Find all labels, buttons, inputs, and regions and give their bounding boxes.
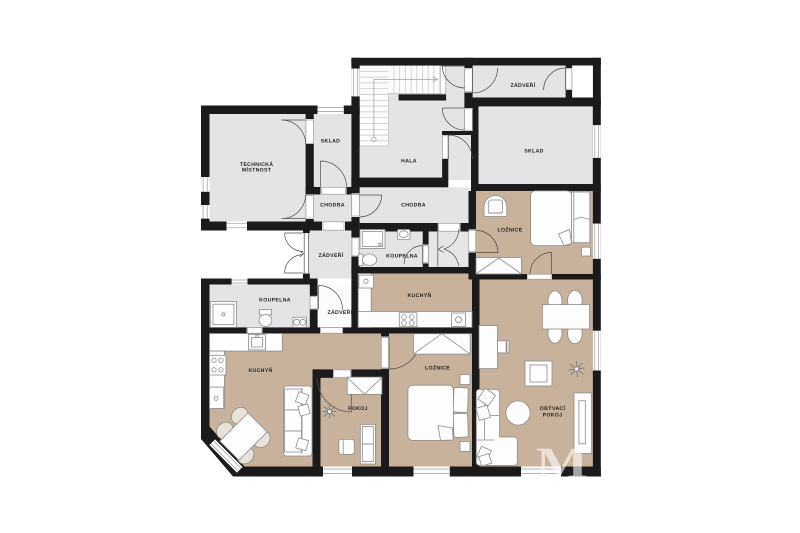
svg-text:POKOJ: POKOJ [348,406,368,412]
svg-text:KOUPELNA: KOUPELNA [259,298,291,304]
svg-text:LOŽNICE: LOŽNICE [425,365,450,372]
svg-text:KOUPELNA: KOUPELNA [386,254,418,260]
svg-text:M: M [536,439,588,488]
svg-text:SKLAD: SKLAD [321,139,340,145]
svg-text:ZÁDVEŘÍ: ZÁDVEŘÍ [510,82,535,89]
svg-text:MÍSTNOST: MÍSTNOST [242,167,272,174]
svg-text:CHODBA: CHODBA [401,203,426,209]
svg-text:CHODBA: CHODBA [320,203,345,209]
svg-text:ZÁDVEŘÍ: ZÁDVEŘÍ [318,252,343,259]
svg-text:ZÁDVEŘÍ: ZÁDVEŘÍ [327,309,352,316]
svg-text:KUCHYŇ: KUCHYŇ [248,367,272,374]
svg-text:HALA: HALA [401,159,417,165]
svg-text:LOŽNICE: LOŽNICE [497,227,522,234]
svg-text:KUCHYŇ: KUCHYŇ [407,292,431,299]
svg-text:SKLAD: SKLAD [524,149,543,155]
svg-text:POKOJ: POKOJ [543,413,563,419]
svg-text:OBÝVACÍ: OBÝVACÍ [540,405,566,412]
